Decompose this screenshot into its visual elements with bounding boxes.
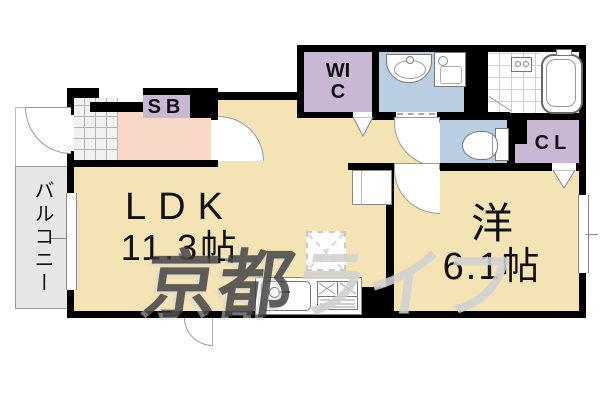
bathtub-icon [541,54,583,114]
washer-pan-inner [440,66,462,84]
refrigerator-divider [361,171,362,204]
washer-drain [438,56,448,66]
wall [464,45,488,117]
pipe-duct [358,287,394,313]
sb-box: SB [143,95,190,118]
hatch-dashed-square [306,231,346,271]
ldk-door-opening [211,120,218,160]
cl-folding-door-icon [552,170,576,189]
gas-stove-icon [317,281,358,310]
wall [297,112,353,118]
refrigerator-space [352,170,392,205]
western-size: 6.1帖 [410,248,574,286]
floorplan: バルコニー WIC [0,0,600,400]
western-label: 洋 [437,203,547,245]
cl-label: CL [527,130,579,156]
wall [297,45,304,118]
bathtub-inner [546,59,576,107]
toilet-icon [462,127,510,161]
window-tick [51,238,67,239]
sb-label: SB [148,97,186,117]
wall [297,45,586,52]
exterior-door-arc [184,318,213,346]
wall [348,163,394,170]
washbasin-tap [406,56,414,64]
wall [488,113,579,120]
sink-faucet-stem [278,291,290,293]
room-cl-ext [515,142,527,165]
wall [576,163,586,171]
wall [217,92,304,100]
washing-machine-pan-icon [434,52,466,87]
washroom-threshold [397,113,435,115]
wall [67,160,218,167]
wall [67,151,74,193]
balcony-label: バルコニー [32,180,52,295]
window-tick [586,234,598,235]
toilet-seat-line [492,133,493,157]
bath-tap-dot [515,61,521,67]
room-wic: WIC [304,52,372,112]
bath-counter-icon [511,57,532,72]
ldk-label: LDK [75,188,285,226]
wall [90,102,143,112]
bathtub-tap [556,49,572,56]
kitchen-sink-icon [261,281,311,311]
wall [67,290,74,311]
kitchen-counter [255,277,362,315]
ldk-size: 11.3帖 [75,230,285,266]
bath-tap-dot [523,61,529,67]
wic-label: WIC [325,61,351,103]
wall [372,45,379,118]
wall [437,163,552,171]
wall [372,112,396,120]
wall [507,118,527,144]
wic-folding-door-icon [352,117,374,137]
cl-label-text: CL [535,133,572,153]
